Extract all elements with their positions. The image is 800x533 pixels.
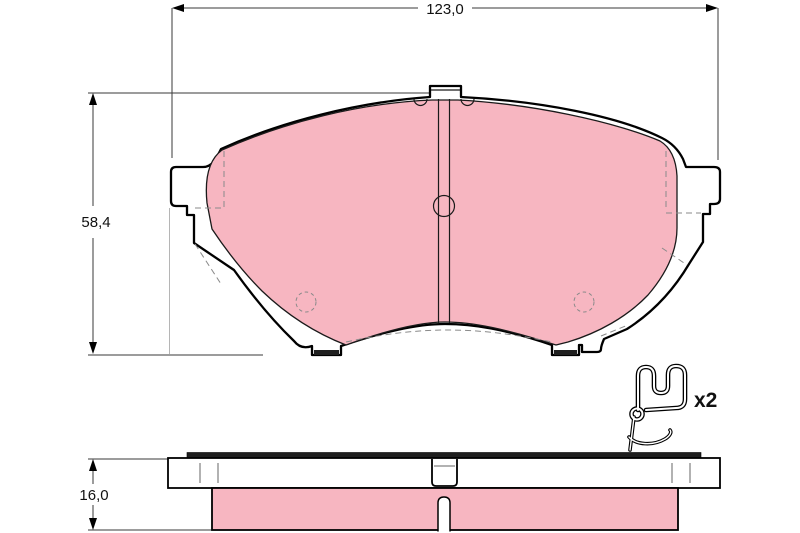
clip-hook-highlight: [629, 430, 671, 444]
arrow-up-icon: [89, 93, 97, 105]
thickness-dimension-label: 16,0: [79, 487, 108, 504]
right-foot-shim-strip: [554, 350, 577, 355]
left-foot-shim-strip: [314, 350, 339, 355]
clip-quantity-label: x2: [694, 389, 717, 412]
arrow-up-icon: [89, 459, 97, 471]
arrow-left-icon: [172, 4, 184, 12]
center-slot-notch: [438, 497, 450, 532]
arrow-right-icon: [706, 4, 718, 12]
height-dimension-label: 58,4: [81, 214, 110, 231]
spring-clip: x2: [629, 366, 717, 450]
center-tab-edge: [432, 459, 457, 486]
clip-wire-highlight: [638, 366, 685, 410]
clip-wire: [638, 366, 685, 410]
brake-pad-side-view: [168, 453, 720, 532]
arrow-down-icon: [89, 342, 97, 354]
brake-pad-technical-drawing: 123,0 58,4 16,0: [0, 0, 800, 533]
width-dimension-label: 123,0: [426, 1, 464, 18]
brake-pad-front-view: [170, 86, 721, 355]
arrow-down-icon: [89, 518, 97, 530]
drawing-canvas: 123,0 58,4 16,0: [0, 0, 800, 533]
